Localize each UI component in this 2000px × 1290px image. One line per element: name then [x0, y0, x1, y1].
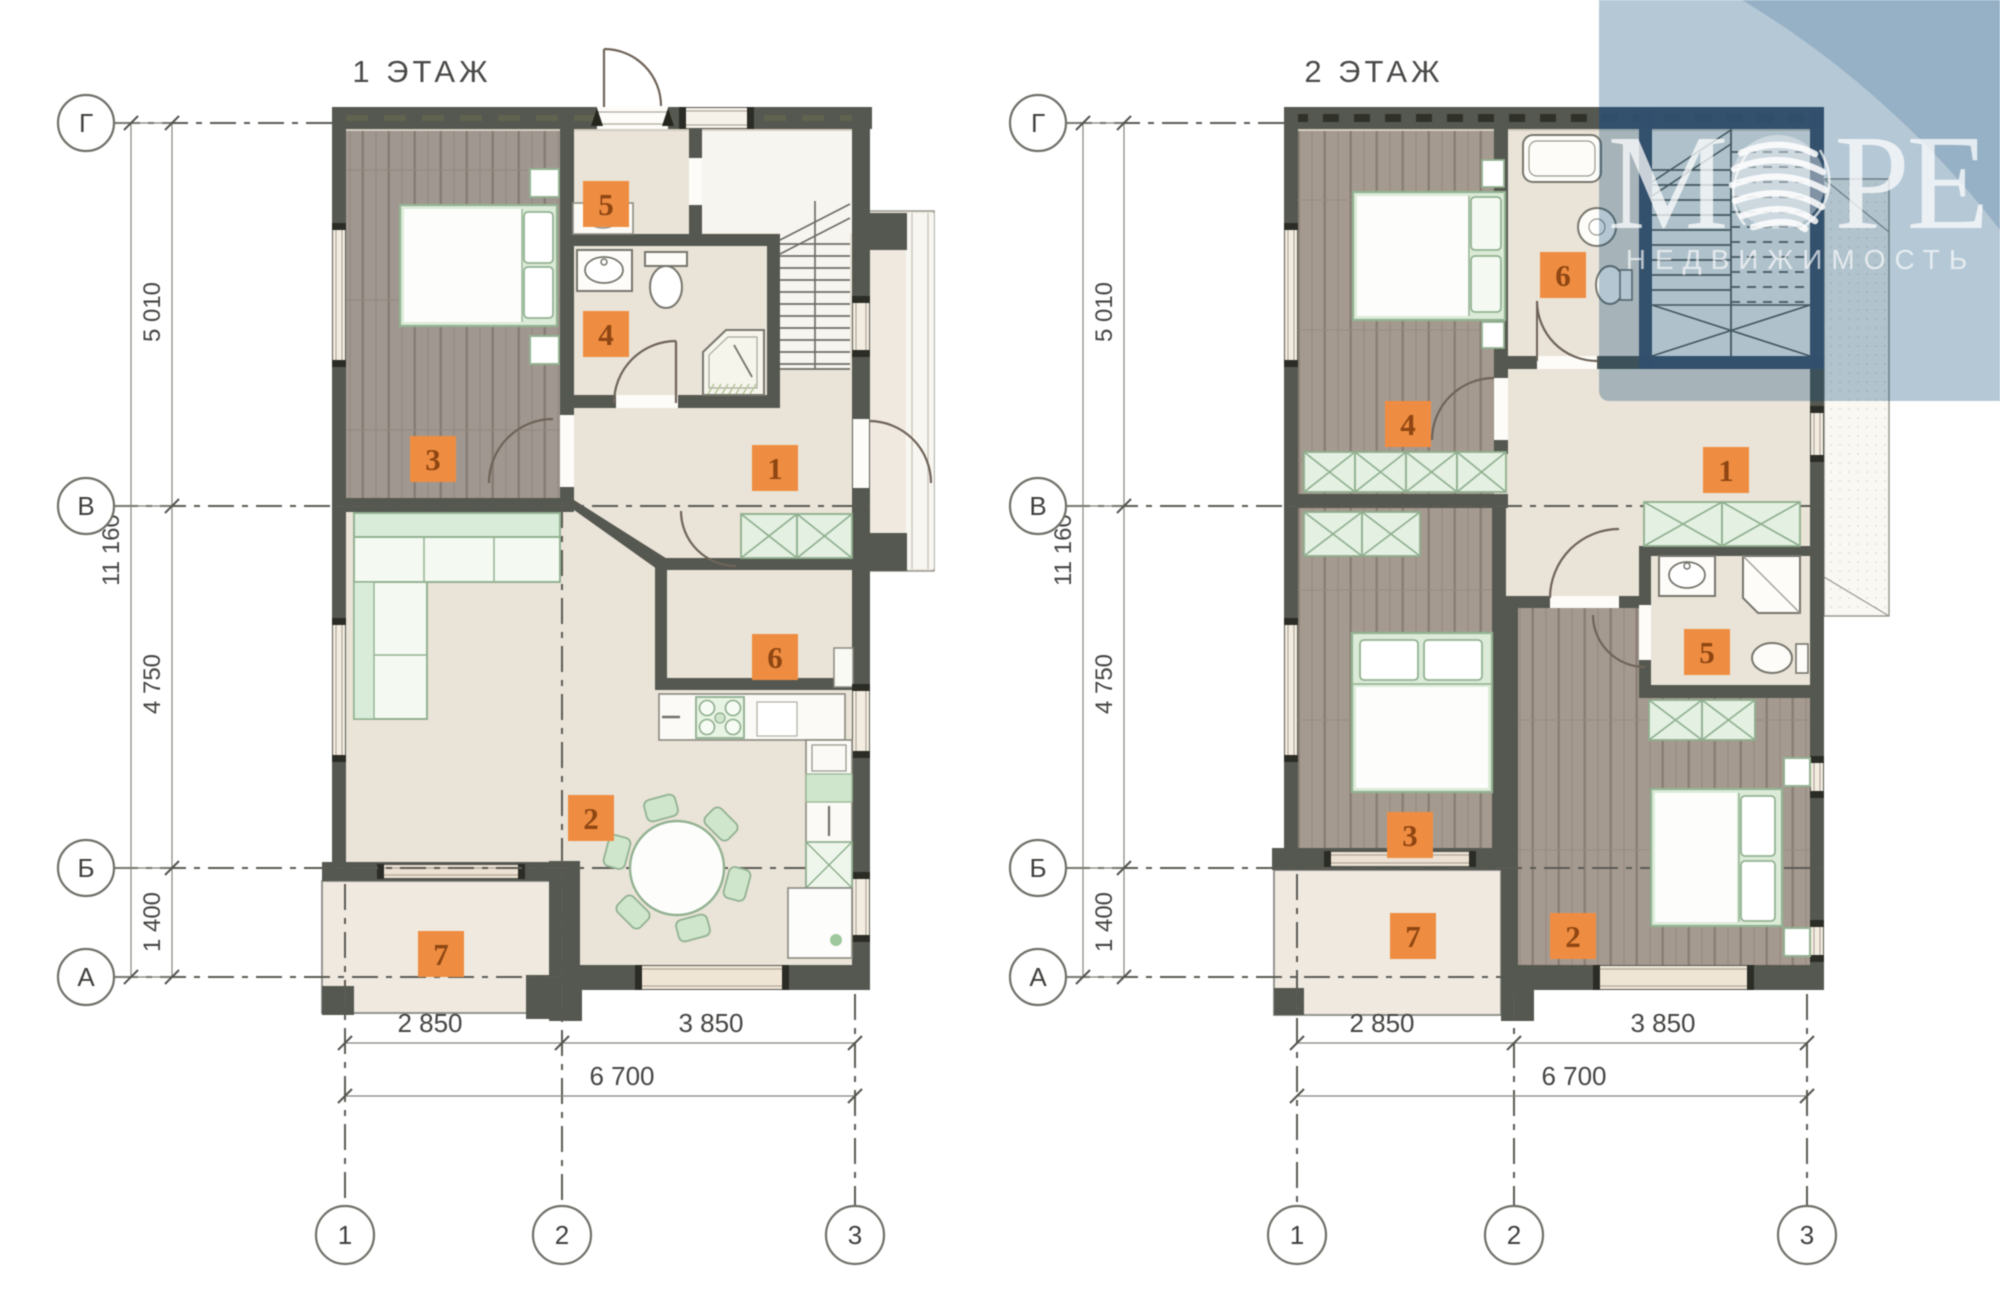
- svg-text:М: М: [1608, 108, 1729, 258]
- svg-text:5: 5: [1699, 635, 1715, 670]
- svg-text:А: А: [1029, 962, 1047, 992]
- svg-text:А: А: [77, 962, 95, 992]
- svg-text:Е: Е: [1906, 108, 1989, 258]
- svg-text:6 700: 6 700: [1541, 1061, 1606, 1091]
- svg-text:НЕДВИЖИМОСТЬ: НЕДВИЖИМОСТЬ: [1626, 244, 1977, 275]
- svg-text:1 400: 1 400: [1091, 892, 1118, 952]
- svg-text:1: 1: [767, 451, 783, 486]
- svg-text:4 750: 4 750: [1091, 654, 1118, 714]
- svg-text:2: 2: [555, 1220, 569, 1250]
- svg-text:5 010: 5 010: [1091, 282, 1118, 342]
- svg-text:Г: Г: [1031, 108, 1045, 138]
- svg-text:7: 7: [433, 937, 449, 972]
- svg-text:2: 2: [583, 801, 599, 836]
- svg-text:3: 3: [848, 1220, 862, 1250]
- svg-text:7: 7: [1405, 919, 1421, 954]
- svg-text:1: 1: [1290, 1220, 1304, 1250]
- svg-text:1: 1: [338, 1220, 352, 1250]
- svg-text:В: В: [77, 491, 94, 521]
- svg-text:Р: Р: [1834, 108, 1910, 258]
- svg-text:2 850: 2 850: [397, 1008, 462, 1038]
- svg-text:5: 5: [598, 187, 614, 222]
- svg-text:1 ЭТАЖ: 1 ЭТАЖ: [352, 54, 491, 89]
- svg-text:Б: Б: [1029, 853, 1046, 883]
- svg-text:5 010: 5 010: [139, 282, 166, 342]
- svg-text:6: 6: [1555, 258, 1571, 293]
- svg-text:3: 3: [1800, 1220, 1814, 1250]
- svg-text:4: 4: [598, 317, 614, 352]
- svg-text:6: 6: [767, 640, 783, 675]
- svg-text:1 400: 1 400: [139, 892, 166, 952]
- svg-text:3 850: 3 850: [1630, 1008, 1695, 1038]
- svg-text:Г: Г: [79, 108, 93, 138]
- svg-text:2 ЭТАЖ: 2 ЭТАЖ: [1304, 54, 1443, 89]
- svg-text:2: 2: [1565, 919, 1581, 954]
- svg-text:2: 2: [1507, 1220, 1521, 1250]
- svg-text:Б: Б: [77, 853, 94, 883]
- svg-text:2 850: 2 850: [1349, 1008, 1414, 1038]
- svg-text:4: 4: [1400, 407, 1416, 442]
- svg-text:1: 1: [1718, 453, 1734, 488]
- svg-text:3: 3: [425, 442, 441, 477]
- svg-text:3 850: 3 850: [678, 1008, 743, 1038]
- svg-text:4 750: 4 750: [139, 654, 166, 714]
- svg-text:3: 3: [1402, 818, 1418, 853]
- svg-text:6 700: 6 700: [589, 1061, 654, 1091]
- svg-text:В: В: [1029, 491, 1046, 521]
